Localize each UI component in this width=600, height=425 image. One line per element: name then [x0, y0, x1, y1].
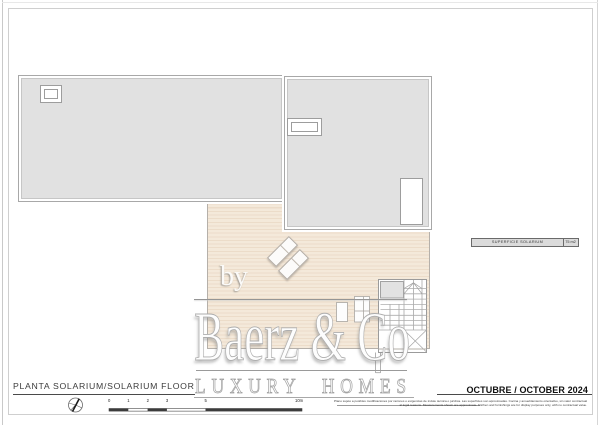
svg-text:0: 0 — [108, 398, 111, 403]
svg-text:2: 2 — [147, 398, 150, 403]
svg-text:1: 1 — [127, 398, 130, 403]
svg-text:3: 3 — [166, 398, 169, 403]
